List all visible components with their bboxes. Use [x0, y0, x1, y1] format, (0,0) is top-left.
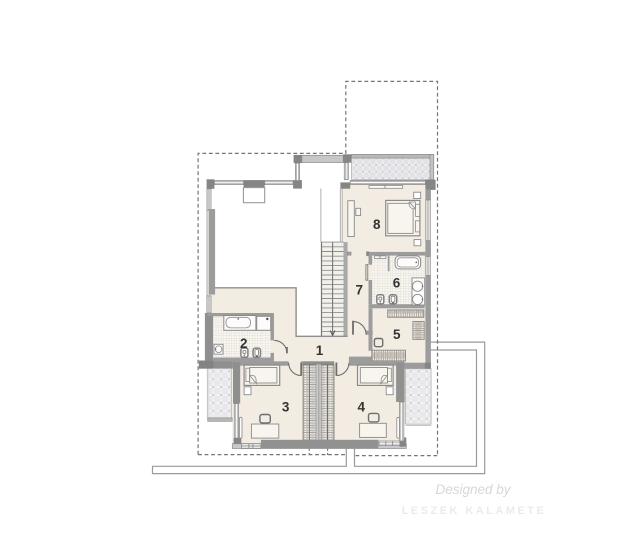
svg-text:3: 3: [282, 399, 290, 414]
svg-text:LESZEK KALAMETE: LESZEK KALAMETE: [402, 505, 547, 517]
svg-text:4: 4: [358, 399, 366, 414]
svg-text:Designed by: Designed by: [435, 482, 511, 497]
svg-text:5: 5: [393, 327, 401, 342]
svg-text:6: 6: [393, 275, 401, 290]
svg-text:8: 8: [373, 217, 381, 232]
svg-text:2: 2: [240, 336, 248, 351]
svg-text:7: 7: [355, 283, 363, 298]
svg-text:1: 1: [316, 343, 324, 358]
